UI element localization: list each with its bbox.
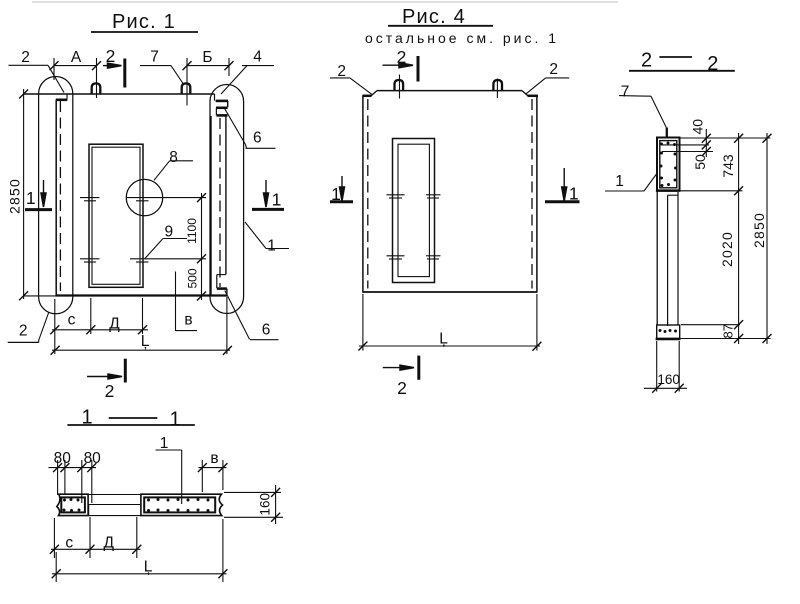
svg-text:Ļ: Ļ [141, 333, 150, 350]
svg-text:1100: 1100 [185, 218, 199, 244]
svg-text:1: 1 [331, 184, 341, 204]
svg-text:2: 2 [549, 61, 558, 78]
svg-text:8: 8 [169, 149, 178, 166]
svg-text:6: 6 [253, 130, 262, 147]
svg-text:9: 9 [164, 224, 173, 241]
svg-text:в: в [184, 312, 192, 329]
svg-text:2: 2 [397, 47, 407, 67]
svg-text:Д: Д [103, 535, 114, 552]
svg-text:2: 2 [106, 46, 116, 66]
svg-text:160: 160 [258, 493, 273, 516]
svg-text:6: 6 [262, 322, 271, 339]
svg-text:2: 2 [337, 63, 346, 80]
svg-text:2020: 2020 [719, 231, 735, 267]
svg-text:Рис. 1: Рис. 1 [112, 11, 176, 33]
svg-text:80: 80 [84, 450, 102, 467]
svg-text:Д: Д [109, 316, 120, 333]
svg-text:1: 1 [81, 407, 92, 429]
svg-text:80: 80 [54, 450, 72, 467]
svg-text:в: в [210, 450, 218, 467]
svg-text:1: 1 [569, 184, 579, 204]
svg-text:с: с [65, 535, 73, 552]
svg-text:743: 743 [720, 154, 736, 178]
svg-text:1: 1 [169, 409, 180, 431]
svg-text:Ļ: Ļ [439, 331, 448, 348]
svg-text:Ļ: Ļ [144, 559, 153, 576]
svg-text:Рис. 4: Рис. 4 [402, 6, 466, 28]
svg-text:160: 160 [657, 372, 680, 387]
svg-text:1: 1 [160, 435, 169, 452]
svg-text:1: 1 [26, 188, 36, 208]
svg-text:4: 4 [253, 49, 262, 66]
svg-text:2: 2 [105, 381, 115, 401]
svg-text:Б: Б [202, 49, 212, 66]
svg-text:7: 7 [621, 84, 630, 101]
svg-text:1: 1 [267, 238, 276, 255]
svg-text:2850: 2850 [7, 178, 23, 214]
svg-text:7: 7 [150, 49, 159, 66]
svg-text:2: 2 [707, 53, 718, 75]
svg-text:2: 2 [641, 50, 652, 72]
svg-text:1: 1 [615, 173, 624, 190]
svg-text:500: 500 [186, 268, 200, 288]
svg-text:2: 2 [397, 378, 407, 398]
svg-text:50: 50 [692, 154, 708, 170]
svg-text:40: 40 [690, 119, 706, 135]
svg-text:остальное см. рис. 1: остальное см. рис. 1 [365, 30, 559, 46]
svg-text:87: 87 [721, 324, 736, 338]
svg-text:1: 1 [272, 190, 282, 210]
svg-text:2: 2 [19, 323, 28, 340]
svg-text:с: с [68, 312, 76, 329]
svg-text:А: А [71, 49, 82, 66]
svg-text:2850: 2850 [751, 212, 767, 248]
svg-text:2: 2 [21, 49, 30, 66]
